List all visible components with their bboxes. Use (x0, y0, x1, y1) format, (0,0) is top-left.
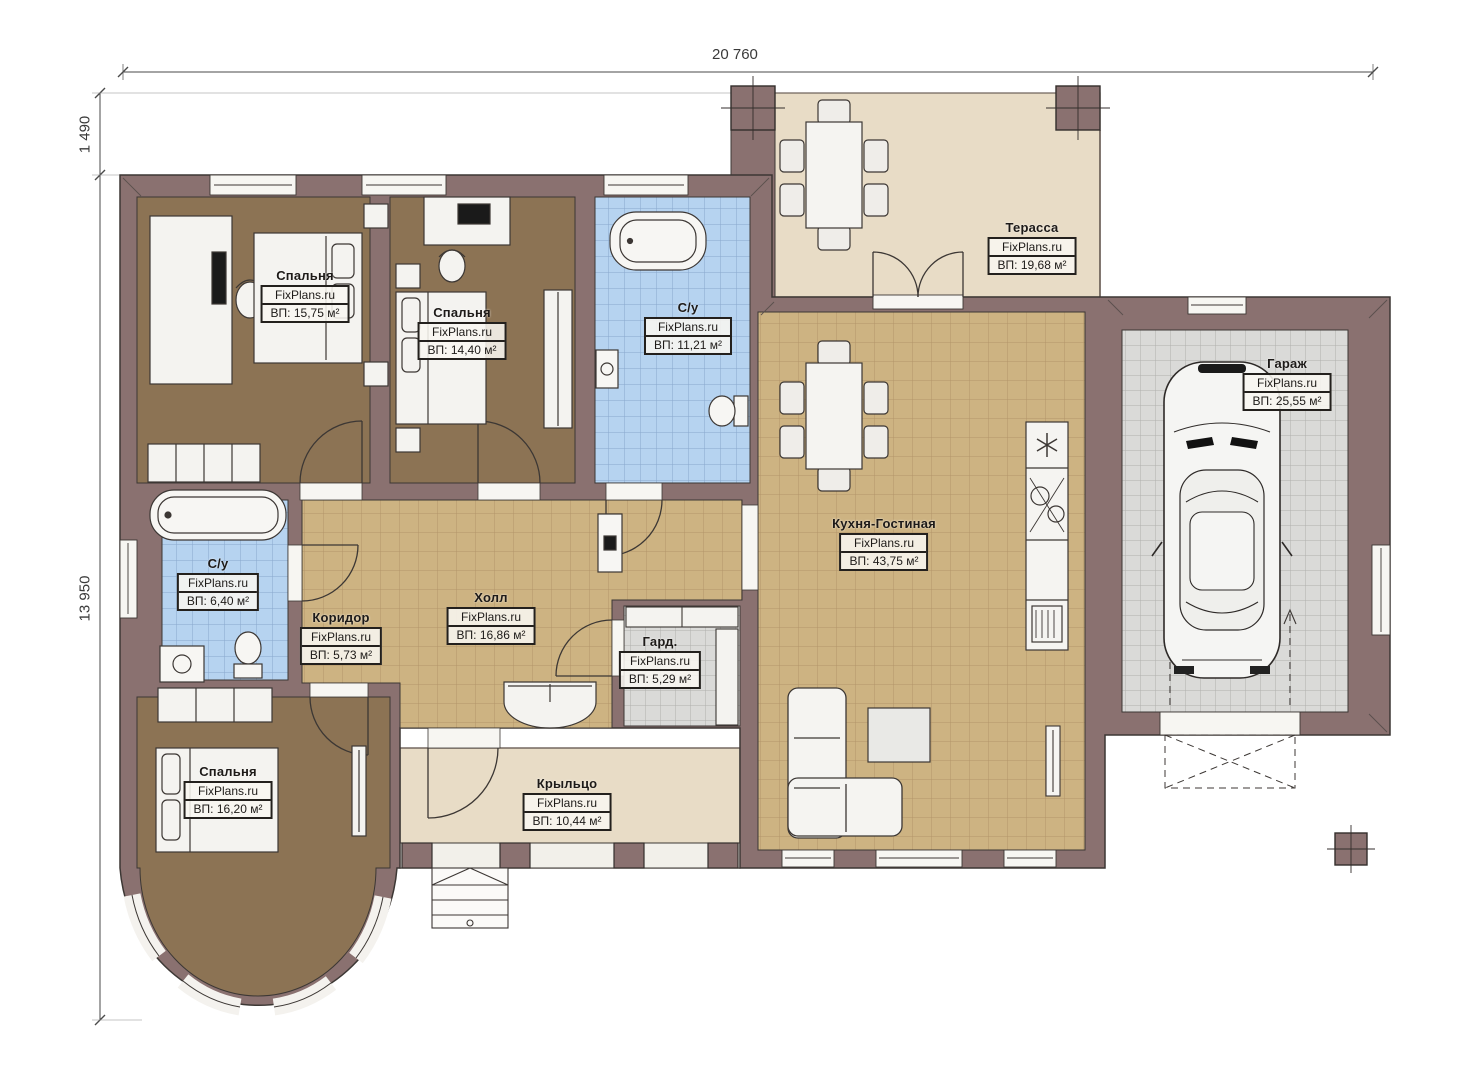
watermark-site: FixPlans.ru (525, 795, 610, 813)
room-area: ВП: 25,55 м² (1245, 393, 1330, 409)
room-area: ВП: 6,40 м² (179, 593, 257, 609)
room-label-bathroom-left: С/у FixPlans.ru ВП: 6,40 м² (177, 556, 259, 611)
watermark-site: FixPlans.ru (990, 239, 1075, 257)
bathtub (610, 212, 706, 270)
pillow (162, 800, 180, 840)
room-label-bathroom-top: С/у FixPlans.ru ВП: 11,21 м² (644, 300, 732, 355)
room-area: ВП: 11,21 м² (646, 337, 730, 353)
chair (439, 250, 465, 282)
coffee-table (868, 708, 930, 762)
room-name: Терасса (988, 220, 1077, 235)
floor-plan-drawing (0, 0, 1473, 1080)
room-area: ВП: 14,40 м² (420, 342, 505, 358)
room-area: ВП: 16,20 м² (186, 801, 271, 817)
toilet (235, 632, 261, 664)
room-name: Спальня (184, 764, 273, 779)
watermark-site: FixPlans.ru (1245, 375, 1330, 393)
room-name: С/у (644, 300, 732, 315)
watermark-site: FixPlans.ru (302, 629, 380, 647)
room-name: Спальня (418, 305, 507, 320)
room-name: Крыльцо (523, 776, 612, 791)
room-name: Спальня (261, 268, 350, 283)
room-area: ВП: 10,44 м² (525, 813, 610, 829)
watermark-site: FixPlans.ru (842, 535, 927, 553)
dimension-top-width: 20 760 (712, 46, 758, 63)
room-label-corridor: Коридор FixPlans.ru ВП: 5,73 м² (300, 610, 382, 665)
watermark-site: FixPlans.ru (420, 324, 505, 342)
terrace-pillar (721, 76, 785, 140)
nightstand (396, 428, 420, 452)
nightstand (364, 362, 388, 386)
toilet-tank (734, 396, 748, 426)
floor-plan-canvas: 20 760 1 490 13 950 Спальня FixPlans.ru … (0, 0, 1473, 1080)
room-area: ВП: 16,86 м² (449, 627, 534, 643)
watermark-site: FixPlans.ru (263, 287, 348, 305)
room-label-bedroom-1: Спальня FixPlans.ru ВП: 15,75 м² (261, 268, 350, 323)
room-area: ВП: 5,73 м² (302, 647, 380, 663)
room-label-garage: Гараж FixPlans.ru ВП: 25,55 м² (1243, 356, 1332, 411)
pillow (162, 754, 180, 794)
room-area: ВП: 19,68 м² (990, 257, 1075, 273)
watermark-site: FixPlans.ru (179, 575, 257, 593)
printer (458, 204, 490, 224)
room-label-wardrobe: Гард. FixPlans.ru ВП: 5,29 м² (619, 634, 701, 689)
nightstand (396, 264, 420, 288)
room-label-kitchen-living: Кухня-Гостиная FixPlans.ru ВП: 43,75 м² (832, 516, 936, 571)
room-name: Гард. (619, 634, 701, 649)
room-area: ВП: 5,29 м² (621, 671, 699, 687)
site-pillar (1327, 825, 1375, 873)
porch-steps (432, 868, 508, 928)
toilet-tank (234, 664, 262, 678)
room-name: Кухня-Гостиная (832, 516, 936, 531)
room-label-terrace: Терасса FixPlans.ru ВП: 19,68 м² (988, 220, 1077, 275)
terrace-pillar (1046, 76, 1110, 140)
room-label-hall: Холл FixPlans.ru ВП: 16,86 м² (447, 590, 536, 645)
room-area: ВП: 43,75 м² (842, 553, 927, 569)
room-name: Гараж (1243, 356, 1332, 371)
porch (400, 748, 740, 928)
dimension-left-lower: 13 950 (76, 576, 93, 622)
toilet (709, 396, 735, 426)
hall-bench (504, 682, 596, 728)
watermark-site: FixPlans.ru (186, 783, 271, 801)
watermark-site: FixPlans.ru (449, 609, 534, 627)
room-name: Холл (447, 590, 536, 605)
sink (596, 350, 618, 388)
dimension-left-upper: 1 490 (76, 116, 93, 154)
monitor (212, 252, 226, 304)
nightstand (364, 204, 388, 228)
watermark-site: FixPlans.ru (621, 653, 699, 671)
living-radiator (1046, 726, 1060, 796)
room-label-bedroom-2: Спальня FixPlans.ru ВП: 14,40 м² (418, 305, 507, 360)
wardrobe-cabinet (158, 688, 272, 722)
room-name: С/у (177, 556, 259, 571)
washing-machine (160, 646, 204, 682)
watermark-site: FixPlans.ru (646, 319, 730, 337)
kitchen-counter (1026, 422, 1068, 650)
room-label-porch: Крыльцо FixPlans.ru ВП: 10,44 м² (523, 776, 612, 831)
room-name: Коридор (300, 610, 382, 625)
room-label-bedroom-3: Спальня FixPlans.ru ВП: 16,20 м² (184, 764, 273, 819)
room-area: ВП: 15,75 м² (263, 305, 348, 321)
